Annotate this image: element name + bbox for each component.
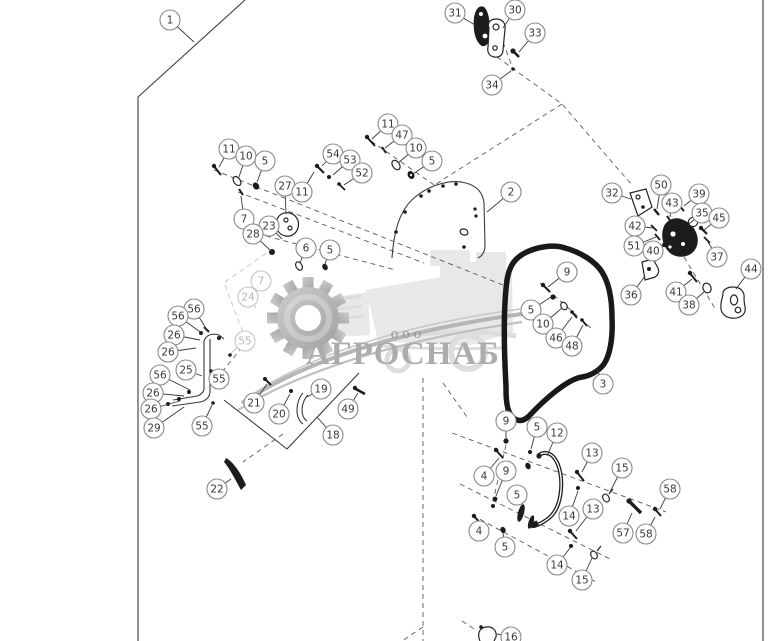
callout-57: 57 xyxy=(613,513,633,543)
svg-text:27: 27 xyxy=(278,181,291,193)
svg-text:42: 42 xyxy=(628,221,641,233)
svg-text:23: 23 xyxy=(262,221,275,233)
callout-1: 1 xyxy=(160,10,194,42)
svg-text:31: 31 xyxy=(448,8,461,20)
svg-text:45: 45 xyxy=(712,213,725,225)
svg-text:49: 49 xyxy=(341,404,354,416)
callout-13: 13 xyxy=(576,499,603,531)
svg-text:7: 7 xyxy=(241,214,248,226)
callout-55: 55 xyxy=(209,369,229,389)
svg-text:30: 30 xyxy=(508,5,521,17)
diagram-svg: ооо АГРОСНАБ xyxy=(0,0,781,641)
svg-text:6: 6 xyxy=(303,243,310,255)
svg-text:3: 3 xyxy=(600,379,607,391)
svg-text:14: 14 xyxy=(550,560,564,572)
svg-text:9: 9 xyxy=(503,416,510,428)
svg-text:2: 2 xyxy=(508,187,515,199)
callout-9: 9 xyxy=(548,262,577,287)
svg-text:21: 21 xyxy=(247,398,260,410)
callout-31: 31 xyxy=(445,3,475,25)
callout-34: 34 xyxy=(482,71,511,95)
svg-text:55: 55 xyxy=(238,336,251,348)
svg-text:9: 9 xyxy=(503,466,510,478)
svg-text:16: 16 xyxy=(504,632,518,641)
svg-text:43: 43 xyxy=(665,198,678,210)
svg-text:5: 5 xyxy=(327,245,334,257)
glass-panel xyxy=(392,182,485,258)
svg-text:26: 26 xyxy=(161,347,175,359)
callout-55: 55 xyxy=(231,331,255,353)
frame-bevel-line xyxy=(138,0,245,97)
interior-handle xyxy=(721,287,745,318)
svg-text:14: 14 xyxy=(562,511,576,523)
callout-2: 2 xyxy=(487,182,521,212)
svg-text:36: 36 xyxy=(624,290,638,302)
svg-text:52: 52 xyxy=(355,168,368,180)
callout-16: 16 xyxy=(497,627,521,641)
svg-text:26: 26 xyxy=(144,404,158,416)
callout-43: 43 xyxy=(662,193,682,217)
svg-text:11: 11 xyxy=(295,187,308,199)
svg-text:1: 1 xyxy=(167,15,174,27)
svg-text:58: 58 xyxy=(663,484,676,496)
bottom-clamp xyxy=(479,625,497,641)
svg-text:55: 55 xyxy=(212,374,225,386)
callout-12: 12 xyxy=(547,423,567,456)
svg-text:46: 46 xyxy=(549,333,563,345)
svg-text:51: 51 xyxy=(627,241,640,253)
svg-text:9: 9 xyxy=(564,267,571,279)
svg-text:5: 5 xyxy=(502,542,509,554)
svg-text:24: 24 xyxy=(241,292,255,304)
svg-text:5: 5 xyxy=(534,422,541,434)
svg-text:5: 5 xyxy=(528,305,535,317)
svg-text:57: 57 xyxy=(616,528,629,540)
svg-text:47: 47 xyxy=(395,130,408,142)
callout-22: 22 xyxy=(207,479,231,499)
svg-text:15: 15 xyxy=(615,463,628,475)
svg-text:40: 40 xyxy=(646,246,659,258)
callout-42: 42 xyxy=(625,216,653,236)
callout-58: 58 xyxy=(636,517,656,544)
wedge-strip xyxy=(224,458,246,490)
callout-13: 13 xyxy=(582,443,602,472)
svg-text:19: 19 xyxy=(314,384,327,396)
callout-44: 44 xyxy=(736,259,761,289)
callout-4: 4 xyxy=(474,458,499,486)
svg-text:20: 20 xyxy=(272,409,285,421)
svg-text:5: 5 xyxy=(262,156,269,168)
svg-text:10: 10 xyxy=(536,319,549,331)
callout-37: 37 xyxy=(707,242,727,267)
svg-text:18: 18 xyxy=(326,430,339,442)
svg-text:56: 56 xyxy=(171,311,185,323)
svg-text:32: 32 xyxy=(605,188,618,200)
parts-diagram-page: ооо АГРОСНАБ xyxy=(0,0,781,641)
callout-49: 49 xyxy=(338,393,358,419)
glass-mounting-holes xyxy=(394,182,477,249)
callout-25: 25 xyxy=(176,360,202,380)
svg-text:10: 10 xyxy=(239,151,252,163)
svg-text:11: 11 xyxy=(381,119,394,131)
svg-text:10: 10 xyxy=(409,143,422,155)
svg-text:29: 29 xyxy=(147,423,160,435)
callout-39: 39 xyxy=(684,184,709,206)
svg-text:25: 25 xyxy=(179,365,192,377)
svg-text:11: 11 xyxy=(222,144,235,156)
svg-text:54: 54 xyxy=(326,149,340,161)
svg-text:39: 39 xyxy=(692,189,705,201)
svg-text:12: 12 xyxy=(550,428,563,440)
callout-40: 40 xyxy=(643,241,663,261)
svg-text:37: 37 xyxy=(710,252,723,264)
svg-text:33: 33 xyxy=(528,28,541,40)
watermark: ооо АГРОСНАБ xyxy=(238,250,522,410)
callout-15: 15 xyxy=(572,558,592,590)
callout-14: 14 xyxy=(547,548,570,575)
svg-text:13: 13 xyxy=(586,504,599,516)
svg-text:35: 35 xyxy=(695,208,708,220)
svg-text:53: 53 xyxy=(343,155,356,167)
callout-7: 7 xyxy=(251,271,271,291)
callout-6: 6 xyxy=(296,238,316,263)
svg-text:58: 58 xyxy=(639,529,652,541)
callout-5: 5 xyxy=(527,417,547,449)
svg-text:26: 26 xyxy=(167,330,181,342)
callout-19: 19 xyxy=(307,379,331,399)
svg-text:5: 5 xyxy=(429,156,436,168)
svg-text:7: 7 xyxy=(258,276,265,288)
callout-24: 24 xyxy=(238,287,258,308)
svg-text:5: 5 xyxy=(514,490,521,502)
callout-20: 20 xyxy=(269,394,290,424)
svg-text:41: 41 xyxy=(669,287,682,299)
watermark-company: АГРОСНАБ xyxy=(306,336,500,372)
callout-26: 26 xyxy=(141,399,180,419)
svg-text:34: 34 xyxy=(485,80,499,92)
callout-33: 33 xyxy=(519,23,545,52)
svg-text:56: 56 xyxy=(187,304,201,316)
callout-5: 5 xyxy=(507,485,527,505)
callout-30: 30 xyxy=(503,0,525,28)
callout-5: 5 xyxy=(255,151,275,182)
svg-text:4: 4 xyxy=(476,526,483,538)
callout-32: 32 xyxy=(602,183,631,203)
callout-9: 9 xyxy=(496,411,516,439)
svg-text:22: 22 xyxy=(210,484,223,496)
svg-text:48: 48 xyxy=(565,341,578,353)
callout-11: 11 xyxy=(292,172,314,202)
svg-text:15: 15 xyxy=(575,575,588,587)
callout-15: 15 xyxy=(609,458,632,494)
callout-21: 21 xyxy=(244,384,267,413)
callout-58: 58 xyxy=(660,479,680,509)
callout-18: 18 xyxy=(317,417,343,445)
svg-text:26: 26 xyxy=(146,388,160,400)
callout-4: 4 xyxy=(469,521,489,541)
svg-text:56: 56 xyxy=(153,370,167,382)
svg-text:13: 13 xyxy=(585,448,598,460)
callout-36: 36 xyxy=(621,276,645,305)
callout-55: 55 xyxy=(192,405,212,436)
svg-text:44: 44 xyxy=(744,264,758,276)
svg-text:38: 38 xyxy=(682,300,695,312)
callout-48: 48 xyxy=(562,325,583,356)
svg-text:28: 28 xyxy=(246,229,259,241)
svg-text:50: 50 xyxy=(654,180,667,192)
callout-10: 10 xyxy=(236,146,256,177)
svg-text:55: 55 xyxy=(195,421,208,433)
callout-35: 35 xyxy=(689,203,712,224)
svg-text:4: 4 xyxy=(481,471,488,483)
callout-5: 5 xyxy=(320,240,340,264)
